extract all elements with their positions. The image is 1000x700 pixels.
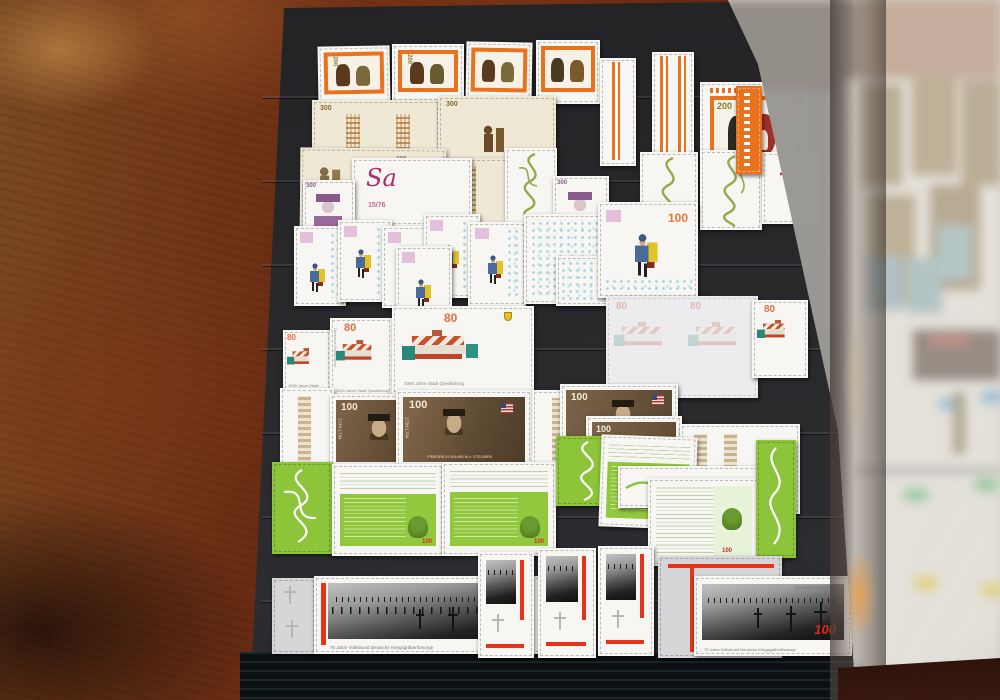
- costume-figure: [570, 60, 584, 82]
- postman-figure: [632, 232, 659, 277]
- stamp-value: 80: [690, 302, 701, 312]
- pale-panel: 100: [714, 486, 752, 556]
- steuben-portrait: [441, 407, 467, 441]
- stamp-town-ghost-pair: 80 80: [606, 296, 758, 398]
- selvage-green-flourish: [272, 462, 332, 554]
- stamp-value: 100: [409, 400, 427, 411]
- red-corner-mark: [668, 564, 774, 568]
- stamp-town-80: 80 1000 Jahre Stadt Quedlinburg: [283, 330, 331, 396]
- costume-figure: [356, 66, 370, 86]
- selvage-cross-margin: [272, 578, 316, 654]
- calligraphy-initial: Sa: [366, 166, 397, 190]
- stamp-value: 80: [344, 323, 356, 334]
- manuscript-lines: [340, 472, 436, 492]
- green-panel: 100: [450, 492, 548, 546]
- steuben-portrait: [366, 412, 392, 442]
- postman-figure: [354, 248, 372, 278]
- town-scene: [402, 330, 480, 366]
- orange-dotted-band: [660, 56, 668, 158]
- calligraphy-note: 15/76: [368, 202, 386, 209]
- stamp-frame: [471, 48, 528, 93]
- green-panel: 100: [340, 494, 436, 546]
- postman-figure: [414, 278, 432, 308]
- red-edge-stripe: [321, 583, 326, 645]
- steuben-name: FRIEDRICH WILHELM v. STEUBEN: [427, 455, 492, 459]
- stamp-value: 100: [534, 539, 544, 545]
- writer-portrait: [408, 516, 428, 538]
- stamp-war-graves-vertical: [538, 548, 596, 658]
- stamp-value: 80: [764, 305, 775, 315]
- pale-cross: [554, 612, 566, 630]
- stamp-frame: [541, 46, 595, 92]
- cemetery-photo: [606, 554, 636, 600]
- stamp-value: 300: [446, 101, 458, 108]
- stamp-manuscript-100: 100: [332, 464, 444, 556]
- stamp-value: 100: [422, 539, 432, 545]
- stamp-postman-100: 100: [598, 202, 698, 298]
- pale-cross: [492, 614, 504, 632]
- pink-corner-box: [430, 220, 443, 231]
- stamp-caption: 1000 Jahre Stadt Quedlinburg: [404, 382, 464, 387]
- manuscript-lines: [450, 470, 548, 490]
- pink-corner-box: [300, 232, 313, 243]
- red-corner-mark: [486, 644, 524, 648]
- writer-portrait: [520, 516, 540, 538]
- cross: [448, 607, 458, 633]
- stamp-caption: 75 Jahre Volksbund Deutsche Kriegsgräber…: [704, 648, 796, 652]
- stamp-value: 100: [722, 548, 732, 554]
- stamp-value: 200: [332, 56, 338, 66]
- stamp-strip-orange: [736, 86, 762, 174]
- distant-cross-row: [488, 570, 514, 575]
- stamp-value: 100: [341, 403, 358, 413]
- stamp-value: 300: [320, 105, 332, 112]
- calligraphy-flourish-icon: [272, 462, 332, 554]
- distant-cross-row: [608, 564, 634, 569]
- costume-figure: [410, 62, 424, 84]
- stamp-caption: 75 Jahre Volksbund Deutsche Kriegsgräber…: [330, 646, 433, 651]
- orange-dotted-band: [678, 56, 686, 158]
- red-edge-stripe: [582, 556, 586, 620]
- manuscript-lines: [656, 486, 716, 556]
- red-corner-mark: [546, 642, 586, 646]
- cross: [416, 609, 424, 629]
- stamp-value: 100: [596, 425, 611, 434]
- writer-portrait: [722, 508, 742, 530]
- beige-ornament-column: [298, 396, 311, 472]
- stamp-value: 200: [717, 102, 732, 111]
- album-page-stack-edge: [240, 652, 862, 700]
- stamp-value: 300: [557, 180, 567, 186]
- coat-of-arms: [504, 312, 512, 321]
- stamp-frame: 200: [398, 50, 458, 92]
- stamp-trachten-rotated: 200: [317, 45, 390, 104]
- red-edge-stripe: [520, 560, 524, 620]
- stamp-war-graves-vertical: [598, 546, 654, 656]
- cross: [786, 606, 796, 632]
- calligraphy-flourish-icon: [756, 440, 796, 558]
- costume-figure: [551, 58, 564, 82]
- stamp-value: 100: [571, 393, 588, 403]
- red-corner-mark: [606, 640, 644, 644]
- manuscript-lines: [608, 442, 691, 463]
- stamp-frame: 200: [324, 51, 385, 94]
- stamp-trachten-rotated: [536, 40, 600, 104]
- life-years: 1730-1794: [337, 418, 342, 440]
- pink-corner-box: [402, 252, 415, 263]
- cross: [754, 608, 762, 628]
- stamp-strip-vertical-orange: [600, 58, 636, 166]
- costume-figure: [430, 64, 444, 84]
- stamp-town-80: 80: [752, 300, 808, 378]
- pale-cross: [612, 610, 624, 628]
- town-scene: [614, 322, 662, 346]
- stamp-caption: 1000 Jahre Stadt Quedlinburg: [336, 389, 389, 393]
- us-flag: [501, 403, 513, 413]
- stamp-manuscript-100: 100: [442, 462, 556, 556]
- costume-figure: [336, 64, 350, 86]
- orange-dotted-band: [612, 62, 620, 160]
- us-flag: [652, 395, 664, 405]
- stamp-trachten-rotated: 200: [392, 44, 464, 102]
- frost-pattern: [506, 228, 522, 298]
- stamp-strip-vertical-orange: [652, 52, 694, 164]
- town-scene: [757, 320, 785, 338]
- stamp-trachten-rotated: [465, 41, 532, 102]
- town-scene: [688, 322, 736, 346]
- glassine-curled-edge: [830, 0, 886, 700]
- cemetery-photo: [486, 560, 516, 604]
- stamp-album-photo: 200 200 200: [0, 0, 1000, 700]
- postman-figure: [308, 262, 326, 292]
- red-edge-stripe: [640, 554, 644, 618]
- stamp-value: 80: [616, 302, 627, 312]
- pink-corner-box: [344, 226, 357, 237]
- stamp-town-80: 80 Deutsche Bundespost 1000 Jahre Stadt …: [330, 318, 392, 398]
- stamp-manuscript-100: 100: [648, 478, 760, 566]
- cemetery-photo: [546, 556, 578, 602]
- pink-corner-box: [388, 232, 401, 243]
- manuscript-lines: [344, 498, 406, 540]
- stamp-value: 80: [444, 312, 457, 324]
- life-years: 1730-1794: [404, 417, 409, 439]
- costume-figure: [482, 60, 495, 82]
- pale-cross: [286, 620, 298, 638]
- stamp-postman: [468, 222, 526, 306]
- stamp-war-graves-vertical: [478, 552, 534, 658]
- costume-figure: [501, 62, 514, 82]
- stamp-value: 80: [287, 334, 296, 342]
- pale-cross: [284, 586, 296, 604]
- town-scene: [287, 348, 309, 366]
- stamp-value: 100: [668, 212, 688, 224]
- pink-corner-box: [475, 228, 489, 239]
- pink-corner-box: [606, 210, 621, 222]
- distant-cross-row: [548, 566, 576, 571]
- white-dash-band: [744, 92, 750, 166]
- cemetery-photo: Deutsche Bundespost 100: [702, 584, 844, 640]
- stamp-town-80-block: 80 1000 Jahre Stadt Quedlinburg: [392, 306, 534, 394]
- stamp-war-graves-100: Deutsche Bundespost 100 75 Jahre Volksbu…: [694, 576, 852, 656]
- manuscript-lines: [454, 496, 518, 540]
- frost-pattern: [604, 278, 692, 292]
- selvage-green-flourish: [756, 440, 796, 558]
- sepia-panel: 100 1730-1794 FRIEDRICH WILHELM v. STEUB…: [403, 397, 525, 462]
- stamp-value: 300: [306, 183, 316, 189]
- town-scene: [336, 340, 371, 363]
- postman-figure: [486, 254, 504, 284]
- stamp-value: 200: [406, 54, 412, 64]
